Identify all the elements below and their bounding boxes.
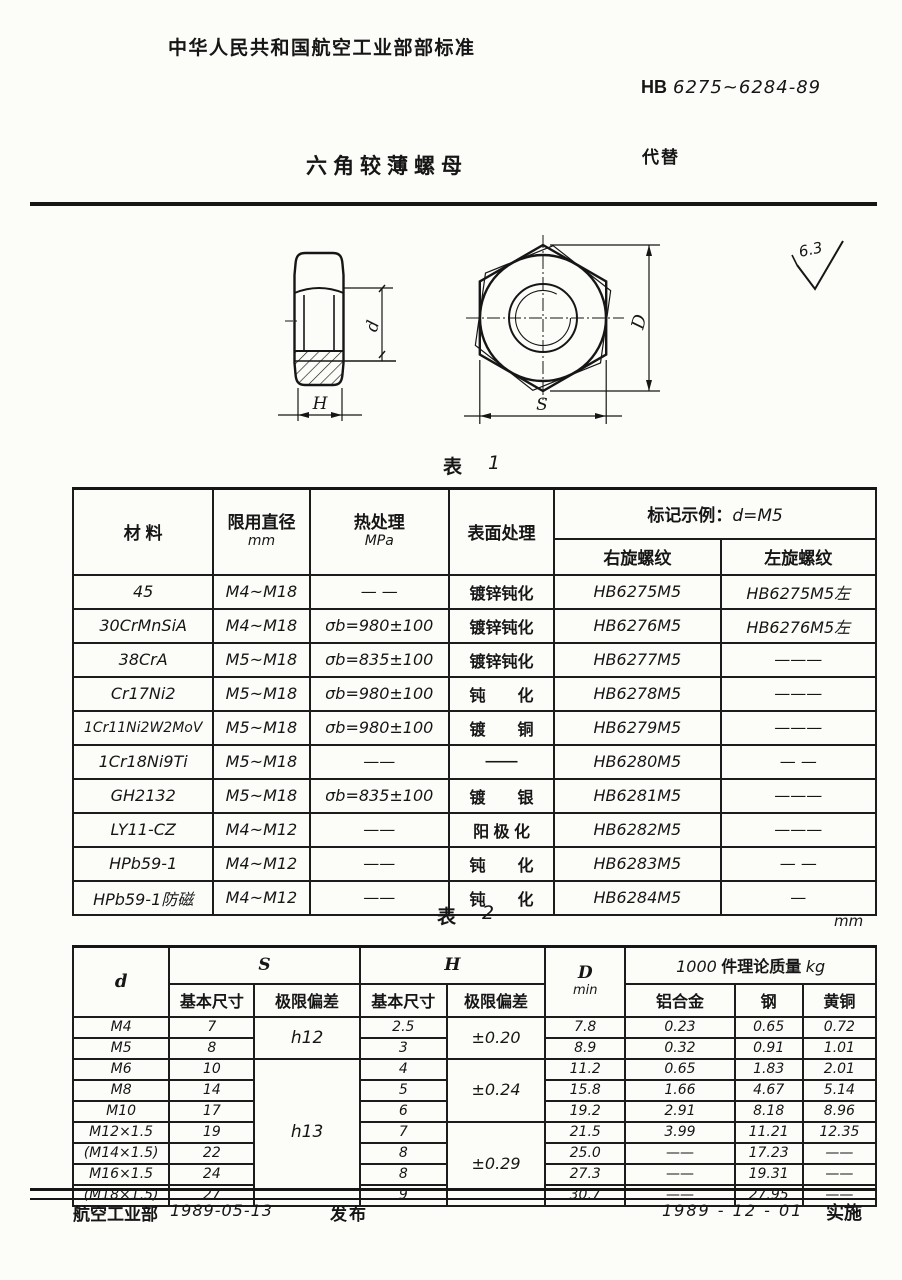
dim-label-s: S <box>536 395 548 415</box>
cell-right-thread: HB6279M5 <box>554 711 720 745</box>
cell-material: LY11-CZ <box>73 813 213 847</box>
col-steel: 钢 <box>735 984 803 1017</box>
hex-nut-technical-drawing: d H D S <box>230 225 880 440</box>
cell-heat: —— <box>310 881 449 915</box>
cell-heat: σb=980±100 <box>310 609 449 643</box>
col-mass-num: 1000 <box>676 957 717 976</box>
col-diameter-label: 限用直径 <box>216 514 306 532</box>
col-material: 材 料 <box>73 489 213 575</box>
col-D-min: D min <box>545 947 625 1017</box>
col-left-thread: 左旋螺纹 <box>721 539 876 575</box>
side-view <box>278 253 396 421</box>
cell-surface: 阳 极 化 <box>449 813 554 847</box>
cell-brass: —— <box>803 1143 876 1164</box>
cell-material: 1Cr11Ni2W2MoV <box>73 711 213 745</box>
cell-aluminum: 0.23 <box>625 1017 734 1038</box>
cell-left-thread: — — <box>721 745 876 779</box>
cell-h-basic: 5 <box>360 1080 447 1101</box>
cell-left-thread: ——— <box>721 677 876 711</box>
cell-material: GH2132 <box>73 779 213 813</box>
cell-surface: 钝 化 <box>449 677 554 711</box>
materials-row: 1Cr18Ni9Ti M5~M18 —— —— HB6280M5 — — <box>73 745 876 779</box>
col-heat-label: 热处理 <box>313 514 446 532</box>
dim-label-D: D <box>627 312 651 333</box>
cell-brass: 8.96 <box>803 1101 876 1122</box>
cell-diameter: M4~M18 <box>213 575 309 609</box>
cell-material: 38CrA <box>73 643 213 677</box>
cell-brass: 2.01 <box>803 1059 876 1080</box>
roughness-value: 6.3 <box>797 238 824 261</box>
cell-heat: —— <box>310 745 449 779</box>
doc-title: 六角较薄螺母 <box>306 150 468 180</box>
cell-aluminum: 0.32 <box>625 1038 734 1059</box>
standard-number-value: 6275~6284-89 <box>673 77 821 98</box>
table1-caption-no: 1 <box>488 452 500 479</box>
cell-diameter: M5~M18 <box>213 677 309 711</box>
col-mass-unit: kg <box>806 957 825 976</box>
cell-heat: σb=980±100 <box>310 677 449 711</box>
cell-h-basic: 8 <box>360 1164 447 1185</box>
cell-s-basic: 10 <box>169 1059 254 1080</box>
cell-material: Cr17Ni2 <box>73 677 213 711</box>
cell-h-basic: 4 <box>360 1059 447 1080</box>
materials-row: HPb59-1 M4~M12 —— 钝 化 HB6283M5 — — <box>73 847 876 881</box>
cell-diameter: M5~M18 <box>213 643 309 677</box>
cell-surface: 镀锌钝化 <box>449 609 554 643</box>
col-D-label: D <box>548 964 622 982</box>
cell-right-thread: HB6281M5 <box>554 779 720 813</box>
cell-aluminum: 0.65 <box>625 1059 734 1080</box>
cell-steel: 17.23 <box>735 1143 803 1164</box>
cell-material: 45 <box>73 575 213 609</box>
col-d: d <box>73 947 169 1017</box>
cell-steel: 11.21 <box>735 1122 803 1143</box>
cell-aluminum: —— <box>625 1164 734 1185</box>
table1-caption-cn: 表 <box>443 452 462 479</box>
cell-brass: 5.14 <box>803 1080 876 1101</box>
cell-h-deviation: ±0.24 <box>447 1059 545 1122</box>
cell-d: M8 <box>73 1080 169 1101</box>
dimensions-table: d S H D min 1000 件理论质量 kg 基本尺寸 极限偏差 基本尺寸… <box>72 945 877 1207</box>
cell-dmin: 8.9 <box>545 1038 625 1059</box>
standard-number: HB 6275~6284-89 <box>641 77 821 98</box>
dimension-row: M6 10 h13 4 ±0.24 11.2 0.65 1.83 2.01 <box>73 1059 876 1080</box>
cell-diameter: M4~M12 <box>213 813 309 847</box>
cell-aluminum: 1.66 <box>625 1080 734 1101</box>
table2-caption: 表 2 <box>437 902 494 929</box>
footer-issuer: 航空工业部 <box>73 1200 158 1225</box>
cell-h-basic: 8 <box>360 1143 447 1164</box>
cell-surface: 钝 化 <box>449 847 554 881</box>
cell-d: M4 <box>73 1017 169 1038</box>
cell-heat: — — <box>310 575 449 609</box>
materials-table: 材 料 限用直径 mm 热处理 MPa 表面处理 标记示例：d=M5 右旋螺纹 … <box>72 487 877 916</box>
cell-right-thread: HB6280M5 <box>554 745 720 779</box>
cell-heat: σb=835±100 <box>310 643 449 677</box>
cell-d: M16×1.5 <box>73 1164 169 1185</box>
dimension-row: M4 7 h12 2.5 ±0.20 7.8 0.23 0.65 0.72 <box>73 1017 876 1038</box>
cell-material: 1Cr18Ni9Ti <box>73 745 213 779</box>
cell-surface: 镀 铜 <box>449 711 554 745</box>
cell-aluminum: —— <box>625 1143 734 1164</box>
cell-brass: 0.72 <box>803 1017 876 1038</box>
col-s-deviation: 极限偏差 <box>254 984 359 1017</box>
col-heat-treatment: 热处理 MPa <box>310 489 449 575</box>
cell-steel: 8.18 <box>735 1101 803 1122</box>
cell-s-basic: 24 <box>169 1164 254 1185</box>
cell-dmin: 27.3 <box>545 1164 625 1185</box>
cell-heat: —— <box>310 847 449 881</box>
cell-steel: 1.83 <box>735 1059 803 1080</box>
cell-s-deviation: h12 <box>254 1017 359 1059</box>
cell-left-thread: — — <box>721 847 876 881</box>
footer-issue-label: 发布 <box>330 1200 368 1225</box>
cell-right-thread: HB6275M5 <box>554 575 720 609</box>
cell-s-basic: 7 <box>169 1017 254 1038</box>
cell-h-basic: 2.5 <box>360 1017 447 1038</box>
cell-brass: 1.01 <box>803 1038 876 1059</box>
cell-s-basic: 19 <box>169 1122 254 1143</box>
header-rule <box>30 202 877 206</box>
col-h-deviation: 极限偏差 <box>447 984 545 1017</box>
col-surface-treatment: 表面处理 <box>449 489 554 575</box>
cell-steel: 0.65 <box>735 1017 803 1038</box>
col-right-thread: 右旋螺纹 <box>554 539 720 575</box>
cell-right-thread: HB6276M5 <box>554 609 720 643</box>
col-h-basic: 基本尺寸 <box>360 984 447 1017</box>
table1-caption: 表 1 <box>443 452 500 479</box>
cell-dmin: 21.5 <box>545 1122 625 1143</box>
cell-dmin: 19.2 <box>545 1101 625 1122</box>
materials-row: GH2132 M5~M18 σb=835±100 镀 银 HB6281M5 ——… <box>73 779 876 813</box>
cell-d: (M14×1.5) <box>73 1143 169 1164</box>
cell-material: HPb59-1 <box>73 847 213 881</box>
col-s-group: S <box>169 947 359 984</box>
cell-brass: —— <box>803 1164 876 1185</box>
footer-impl-date: 1989 - 12 - 01 <box>662 1201 803 1220</box>
col-mass-group: 1000 件理论质量 kg <box>625 947 876 984</box>
cell-s-basic: 8 <box>169 1038 254 1059</box>
cell-aluminum: 3.99 <box>625 1122 734 1143</box>
dim-label-d: d <box>362 318 384 334</box>
col-mass-label: 件理论质量 <box>721 959 801 976</box>
col-marking-value: d=M5 <box>732 506 783 526</box>
cell-d: M5 <box>73 1038 169 1059</box>
cell-surface: 镀 银 <box>449 779 554 813</box>
cell-aluminum: 2.91 <box>625 1101 734 1122</box>
supersedes-label: 代替 <box>642 143 680 168</box>
cell-s-basic: 17 <box>169 1101 254 1122</box>
col-marking-example: 标记示例：d=M5 <box>554 489 876 539</box>
materials-row: 38CrA M5~M18 σb=835±100 镀锌钝化 HB6277M5 ——… <box>73 643 876 677</box>
cell-s-basic: 22 <box>169 1143 254 1164</box>
cell-brass: 12.35 <box>803 1122 876 1143</box>
col-aluminum: 铝合金 <box>625 984 734 1017</box>
col-D-sub: min <box>548 982 622 1000</box>
cell-surface: —— <box>449 745 554 779</box>
footer-issue-date: 1989-05-13 <box>170 1201 273 1220</box>
dim-label-h: H <box>312 394 329 414</box>
cell-right-thread: HB6283M5 <box>554 847 720 881</box>
cell-right-thread: HB6278M5 <box>554 677 720 711</box>
cell-material: HPb59-1防磁 <box>73 881 213 915</box>
cell-h-deviation: ±0.20 <box>447 1017 545 1059</box>
standard-prefix: HB <box>641 77 667 98</box>
cell-h-basic: 7 <box>360 1122 447 1143</box>
standard-document-page: 中华人民共和国航空工业部部标准 HB 6275~6284-89 六角较薄螺母 代… <box>0 0 902 1280</box>
cell-diameter: M5~M18 <box>213 779 309 813</box>
materials-row: Cr17Ni2 M5~M18 σb=980±100 钝 化 HB6278M5 —… <box>73 677 876 711</box>
cell-h-basic: 3 <box>360 1038 447 1059</box>
cell-h-basic: 6 <box>360 1101 447 1122</box>
col-diameter-unit: mm <box>216 532 306 550</box>
cell-s-deviation: h13 <box>254 1059 359 1206</box>
cell-surface: 镀锌钝化 <box>449 575 554 609</box>
cell-left-thread: HB6275M5左 <box>721 575 876 609</box>
cell-s-basic: 14 <box>169 1080 254 1101</box>
cell-diameter: M4~M12 <box>213 881 309 915</box>
cell-surface: 镀锌钝化 <box>449 643 554 677</box>
table2-caption-no: 2 <box>482 902 494 929</box>
cell-right-thread: HB6282M5 <box>554 813 720 847</box>
cell-left-thread: ——— <box>721 779 876 813</box>
dimension-row: M12×1.5 19 7 ±0.29 21.5 3.99 11.21 12.35 <box>73 1122 876 1143</box>
cell-material: 30CrMnSiA <box>73 609 213 643</box>
cell-dmin: 7.8 <box>545 1017 625 1038</box>
cell-heat: —— <box>310 813 449 847</box>
cell-left-thread: — <box>721 881 876 915</box>
cell-left-thread: HB6276M5左 <box>721 609 876 643</box>
cell-d: M12×1.5 <box>73 1122 169 1143</box>
materials-row: LY11-CZ M4~M12 —— 阳 极 化 HB6282M5 ——— <box>73 813 876 847</box>
cell-right-thread: HB6284M5 <box>554 881 720 915</box>
footer-rule <box>30 1188 877 1200</box>
col-h-group: H <box>360 947 545 984</box>
cell-left-thread: ——— <box>721 711 876 745</box>
table2-unit: mm <box>834 912 863 930</box>
col-heat-unit: MPa <box>313 532 446 550</box>
cell-diameter: M4~M18 <box>213 609 309 643</box>
cell-right-thread: HB6277M5 <box>554 643 720 677</box>
cell-diameter: M5~M18 <box>213 745 309 779</box>
cell-d: M10 <box>73 1101 169 1122</box>
col-brass: 黄铜 <box>803 984 876 1017</box>
col-s-basic: 基本尺寸 <box>169 984 254 1017</box>
cell-steel: 4.67 <box>735 1080 803 1101</box>
cell-steel: 19.31 <box>735 1164 803 1185</box>
materials-row: 1Cr11Ni2W2MoV M5~M18 σb=980±100 镀 铜 HB62… <box>73 711 876 745</box>
cell-d: M6 <box>73 1059 169 1080</box>
col-marking-label: 标记示例： <box>647 506 732 525</box>
front-view <box>464 235 660 424</box>
cell-heat: σb=835±100 <box>310 779 449 813</box>
cell-dmin: 15.8 <box>545 1080 625 1101</box>
org-standard-title: 中华人民共和国航空工业部部标准 <box>168 33 476 60</box>
cell-left-thread: ——— <box>721 813 876 847</box>
col-diameter: 限用直径 mm <box>213 489 309 575</box>
materials-row: 45 M4~M18 — — 镀锌钝化 HB6275M5 HB6275M5左 <box>73 575 876 609</box>
cell-diameter: M5~M18 <box>213 711 309 745</box>
cell-left-thread: ——— <box>721 643 876 677</box>
cell-diameter: M4~M12 <box>213 847 309 881</box>
footer-impl-label: 实施 <box>826 1199 862 1225</box>
materials-row: 30CrMnSiA M4~M18 σb=980±100 镀锌钝化 HB6276M… <box>73 609 876 643</box>
cell-dmin: 11.2 <box>545 1059 625 1080</box>
cell-steel: 0.91 <box>735 1038 803 1059</box>
cell-heat: σb=980±100 <box>310 711 449 745</box>
cell-dmin: 25.0 <box>545 1143 625 1164</box>
table2-caption-cn: 表 <box>437 902 456 929</box>
